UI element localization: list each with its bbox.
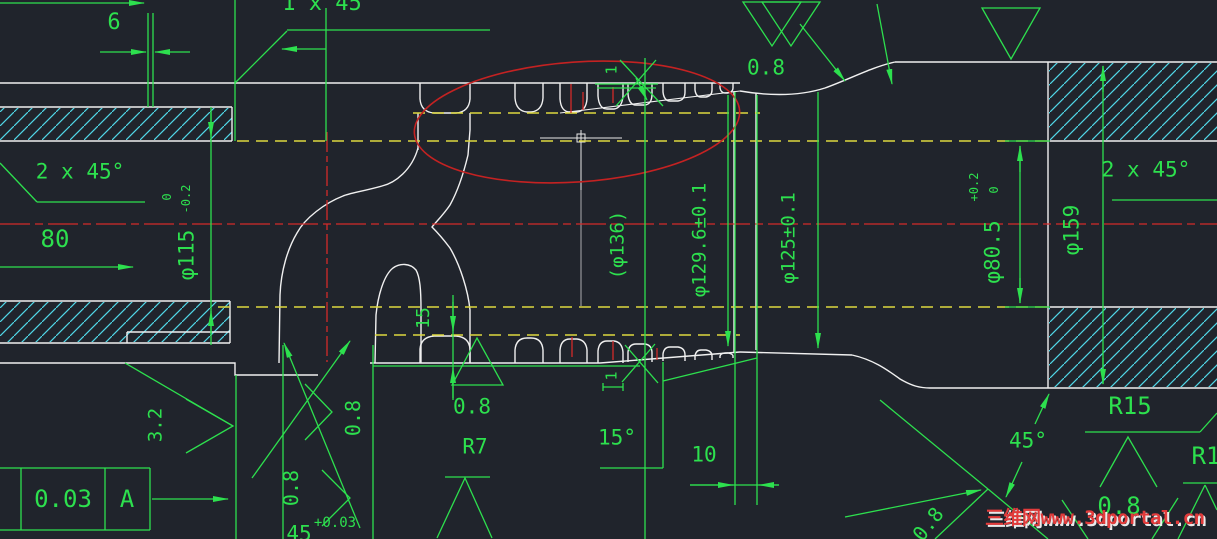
fcf-tolerance-value: 0.03 [34, 487, 92, 511]
dia-125-label: φ125±0.1 [780, 192, 799, 284]
dia-136-label: (φ136) [609, 211, 628, 280]
angle-45-label: 45° [1009, 431, 1047, 452]
fcf-datum-letter: A [120, 487, 134, 511]
dia-129-6-label: φ129.6±0.1 [691, 183, 710, 297]
rough-mid-label: 0.8 [453, 397, 491, 418]
dim-6-label: 6 [107, 12, 120, 34]
dim-45-label: 45 [286, 524, 311, 539]
dim-1-top-label: 1 [605, 65, 620, 74]
chamfer-right-label: 2 x 45° [1102, 160, 1191, 181]
tol-115-hi-label: 0 [161, 193, 173, 200]
rough-rot1-label: 0.8 [343, 400, 363, 436]
rough-top-label: 0.8 [747, 58, 785, 79]
rough-3-2-label: 3.2 [147, 408, 166, 442]
dimension-arrows [0, 3, 1103, 528]
rough-rot2-label: 0.8 [281, 470, 301, 506]
r15-label: R15 [1108, 394, 1151, 418]
dia-159-label: φ159 [1062, 205, 1083, 256]
dim-1-bot-label: 1 [605, 371, 620, 380]
dia-80-5-label: φ80.5 [983, 220, 1004, 283]
watermark: 三维网www.3dportal.cn [985, 503, 1205, 530]
tol-80-5-hi-label: +0.2 [968, 173, 980, 202]
angle-15-label: 15° [598, 428, 636, 449]
cad-viewport[interactable]: 6 1 x 45 2 x 45° 80 φ115 0 -0.2 (φ136) φ… [0, 0, 1217, 539]
tol-45-label: +0.03 [314, 516, 356, 530]
highlight-ellipse [410, 51, 744, 193]
tol-80-5-lo-label: 0 [988, 186, 1000, 193]
r1-label: R1 [1192, 444, 1217, 468]
dia-115-label: φ115 [177, 230, 198, 281]
dim-15-label: 15 [415, 307, 433, 329]
chamfer-top-label: 1 x 45 [282, 0, 361, 15]
r7-label: R7 [462, 437, 487, 458]
tol-115-lo-label: -0.2 [180, 185, 192, 214]
dim-80-label: 80 [41, 227, 70, 251]
dim-10-label: 10 [691, 445, 716, 466]
chamfer-left-label: 2 x 45° [36, 162, 125, 183]
